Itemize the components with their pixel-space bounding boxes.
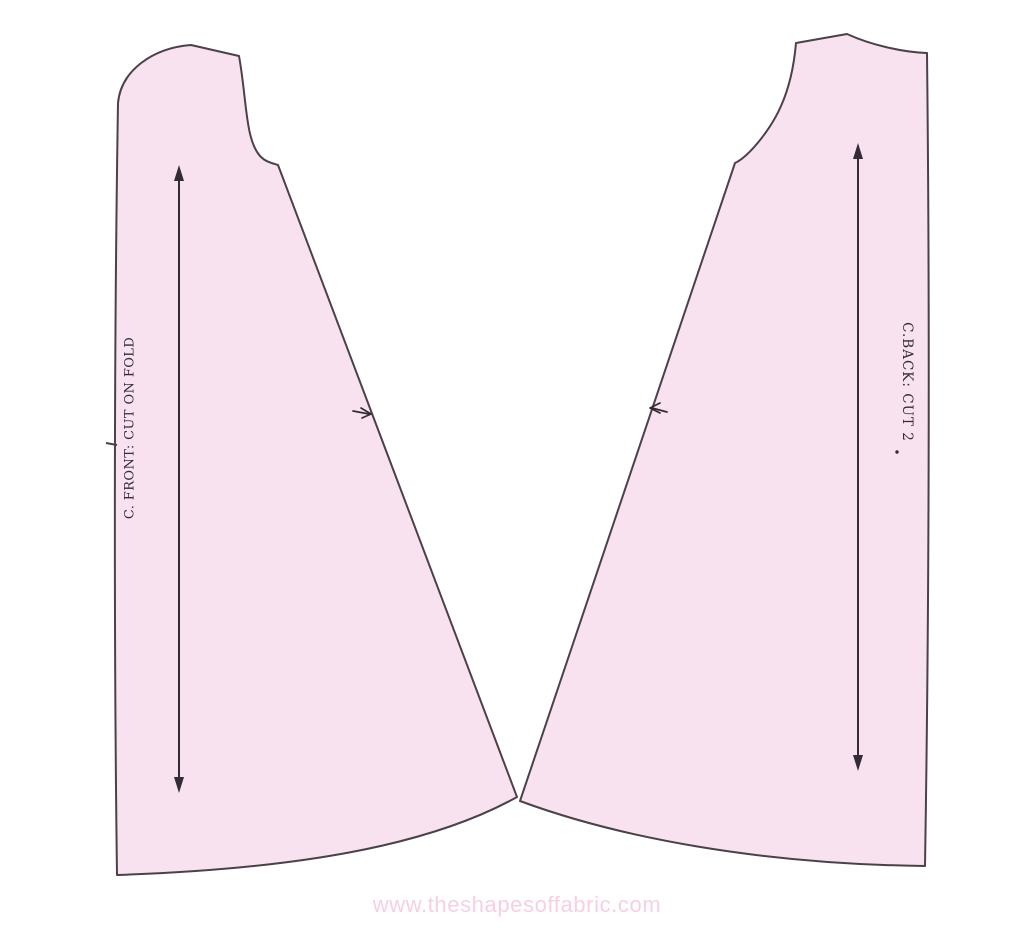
front-piece: C. FRONT: CUT ON FOLD — [106, 45, 517, 875]
back-label-dot-mark — [895, 450, 898, 453]
back-piece-label: C.BACK: CUT 2 — [899, 322, 915, 442]
front-piece-label: C. FRONT: CUT ON FOLD — [123, 337, 138, 519]
front-piece-shape — [115, 45, 517, 875]
site-watermark: www.theshapesoffabric.com — [372, 892, 662, 917]
back-piece: C.BACK: CUT 2 — [520, 34, 929, 866]
sewing-pattern-diagram: C. FRONT: CUT ON FOLD C.BACK: CUT 2 www.… — [0, 0, 1024, 938]
pattern-sheet: C. FRONT: CUT ON FOLD C.BACK: CUT 2 www.… — [0, 0, 1024, 938]
back-piece-shape — [520, 34, 929, 866]
